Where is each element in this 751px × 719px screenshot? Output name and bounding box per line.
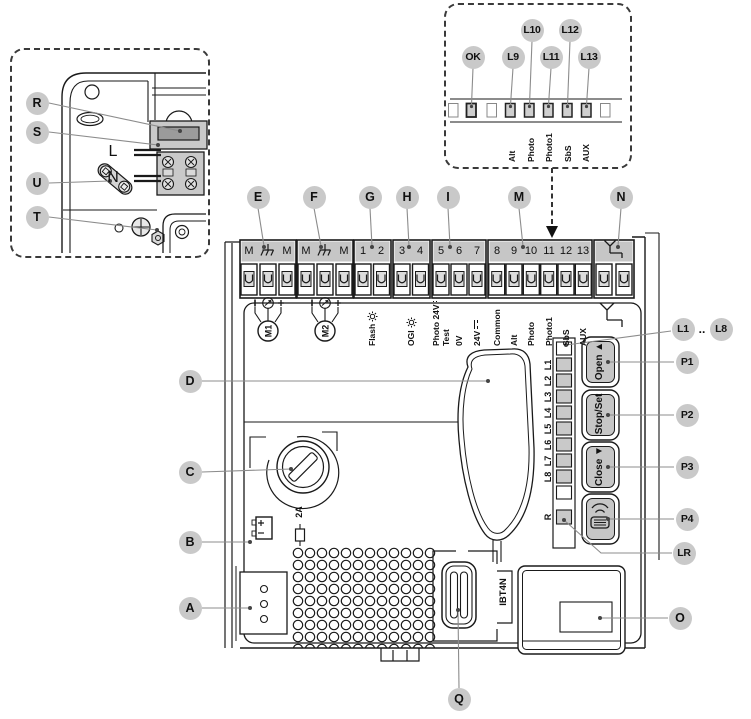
callout-ok: OK [462,46,485,69]
io-label-photo: Photo [525,302,537,346]
terminal-block-n [594,240,634,298]
io-label-alt: Alt [508,302,520,346]
callout-u: U [26,172,49,195]
led-label-alt: Alt [506,124,518,162]
callout-p4: P4 [676,508,699,531]
callout-i: I [437,186,460,209]
led-l3 [557,390,572,403]
led-strip-label-l7: L7 [542,454,554,468]
io-label-0v: 0V [453,302,465,346]
callout-range-dots: .. [695,322,709,336]
callout-l8: L8 [710,318,733,341]
callout-h: H [396,186,419,209]
callout-l12: L12 [559,19,582,42]
io-label-flash: Flash [366,302,378,346]
callout-q: Q [448,688,471,711]
terminal-label-2: 2 [371,243,391,260]
stop-set-button-label: Stop/Set [594,391,606,437]
terminal-label-13: 13 [573,243,593,260]
led-label-sbs: SbS [562,124,574,162]
callout-lr: LR [673,542,696,565]
lamp-icon [367,311,378,322]
terminal-label-10: 10 [521,243,541,260]
dc-voltage-icon [474,320,480,329]
io-label-common: Common [491,302,503,346]
callout-l1: L1 [672,318,695,341]
led-strip-label-l3: L3 [542,390,554,404]
io-label-sbs: SbS [560,302,572,346]
led-l1 [557,358,572,371]
io-label-photo1: Photo1 [543,302,555,346]
io-label-aux: AUX [577,302,589,346]
callout-g: G [359,186,382,209]
led-strip-label-l2: L2 [542,374,554,388]
io-label-24v: 24V [471,302,483,346]
callout-c: C [179,461,202,484]
terminal-label-5: 5 [431,243,451,260]
fuse-holder [267,437,339,509]
led-l6 [557,438,572,451]
led-l5 [557,422,572,435]
led-strip-label-l4: L4 [542,406,554,420]
led-label-photo1: Photo1 [543,124,555,162]
control-board-diagram: M1 M2 [0,0,751,719]
terminal-label-m: M [239,243,259,260]
callout-b: B [179,531,202,554]
led-strip-label-l1: L1 [542,358,554,372]
led-l7 [557,454,572,467]
ibt4n-label: IBT4N [498,565,510,619]
led-strip-label-r: R [542,510,554,524]
terminal-label-4: 4 [410,243,430,260]
fuse-icon [296,524,305,546]
ibt4n-slot [461,572,468,618]
m1-label: M1 [264,325,274,338]
callout-l11: L11 [540,46,563,69]
led-strip-label-l8: L8 [542,470,554,484]
bottom-tab [381,648,419,661]
led-l4 [557,406,572,419]
line-label: L [104,143,122,161]
led-l2 [557,374,572,387]
io-label-test: Test [440,302,452,346]
m2-label: M2 [321,325,331,338]
callout-r: R [26,92,49,115]
terminal-label-7: 7 [467,243,487,260]
callout-p2: P2 [676,404,699,427]
callout-e: E [247,186,270,209]
callout-p3: P3 [676,456,699,479]
callout-t: T [26,206,49,229]
open-button-label: Open ▲ [594,338,606,384]
neutral-label: N [104,169,122,187]
callout-o: O [669,607,692,630]
led-strip-label-l6: L6 [542,438,554,452]
led-strip-label-l5: L5 [542,422,554,436]
callout-s: S [26,121,49,144]
callout-l13: L13 [578,46,601,69]
terminal-label-m: M [296,243,316,260]
connector-a [236,566,287,641]
terminal-label-m: M [277,243,297,260]
callout-l10: L10 [521,19,544,42]
lamp-icon [406,317,417,328]
dashed-arrow-icon [546,168,558,238]
plus-icon [335,300,341,306]
fuse-rating-label: 2A [293,502,305,522]
callout-n: N [610,186,633,209]
vent-grille [292,547,436,649]
terminal-label-3: 3 [392,243,412,260]
terminal-label-1: 1 [353,243,373,260]
callout-l9: L9 [502,46,525,69]
plus-icon [278,300,284,306]
led-strip [553,338,575,548]
callout-m: M [508,186,531,209]
callout-a: A [179,597,202,620]
led-label-aux: AUX [580,124,592,162]
terminal-label-6: 6 [449,243,469,260]
io-label-ogi: OGI [405,302,417,346]
callout-f: F [303,186,326,209]
battery-connector-icon [252,517,272,539]
terminal-label-m: M [334,243,354,260]
antenna-icon [600,303,622,327]
callout-p1: P1 [676,351,699,374]
led-label-photo: Photo [525,124,537,162]
receiver-module [518,566,625,654]
callout-d: D [179,370,202,393]
close-button-label: Close ▼ [594,443,606,489]
led-l8 [557,470,572,483]
